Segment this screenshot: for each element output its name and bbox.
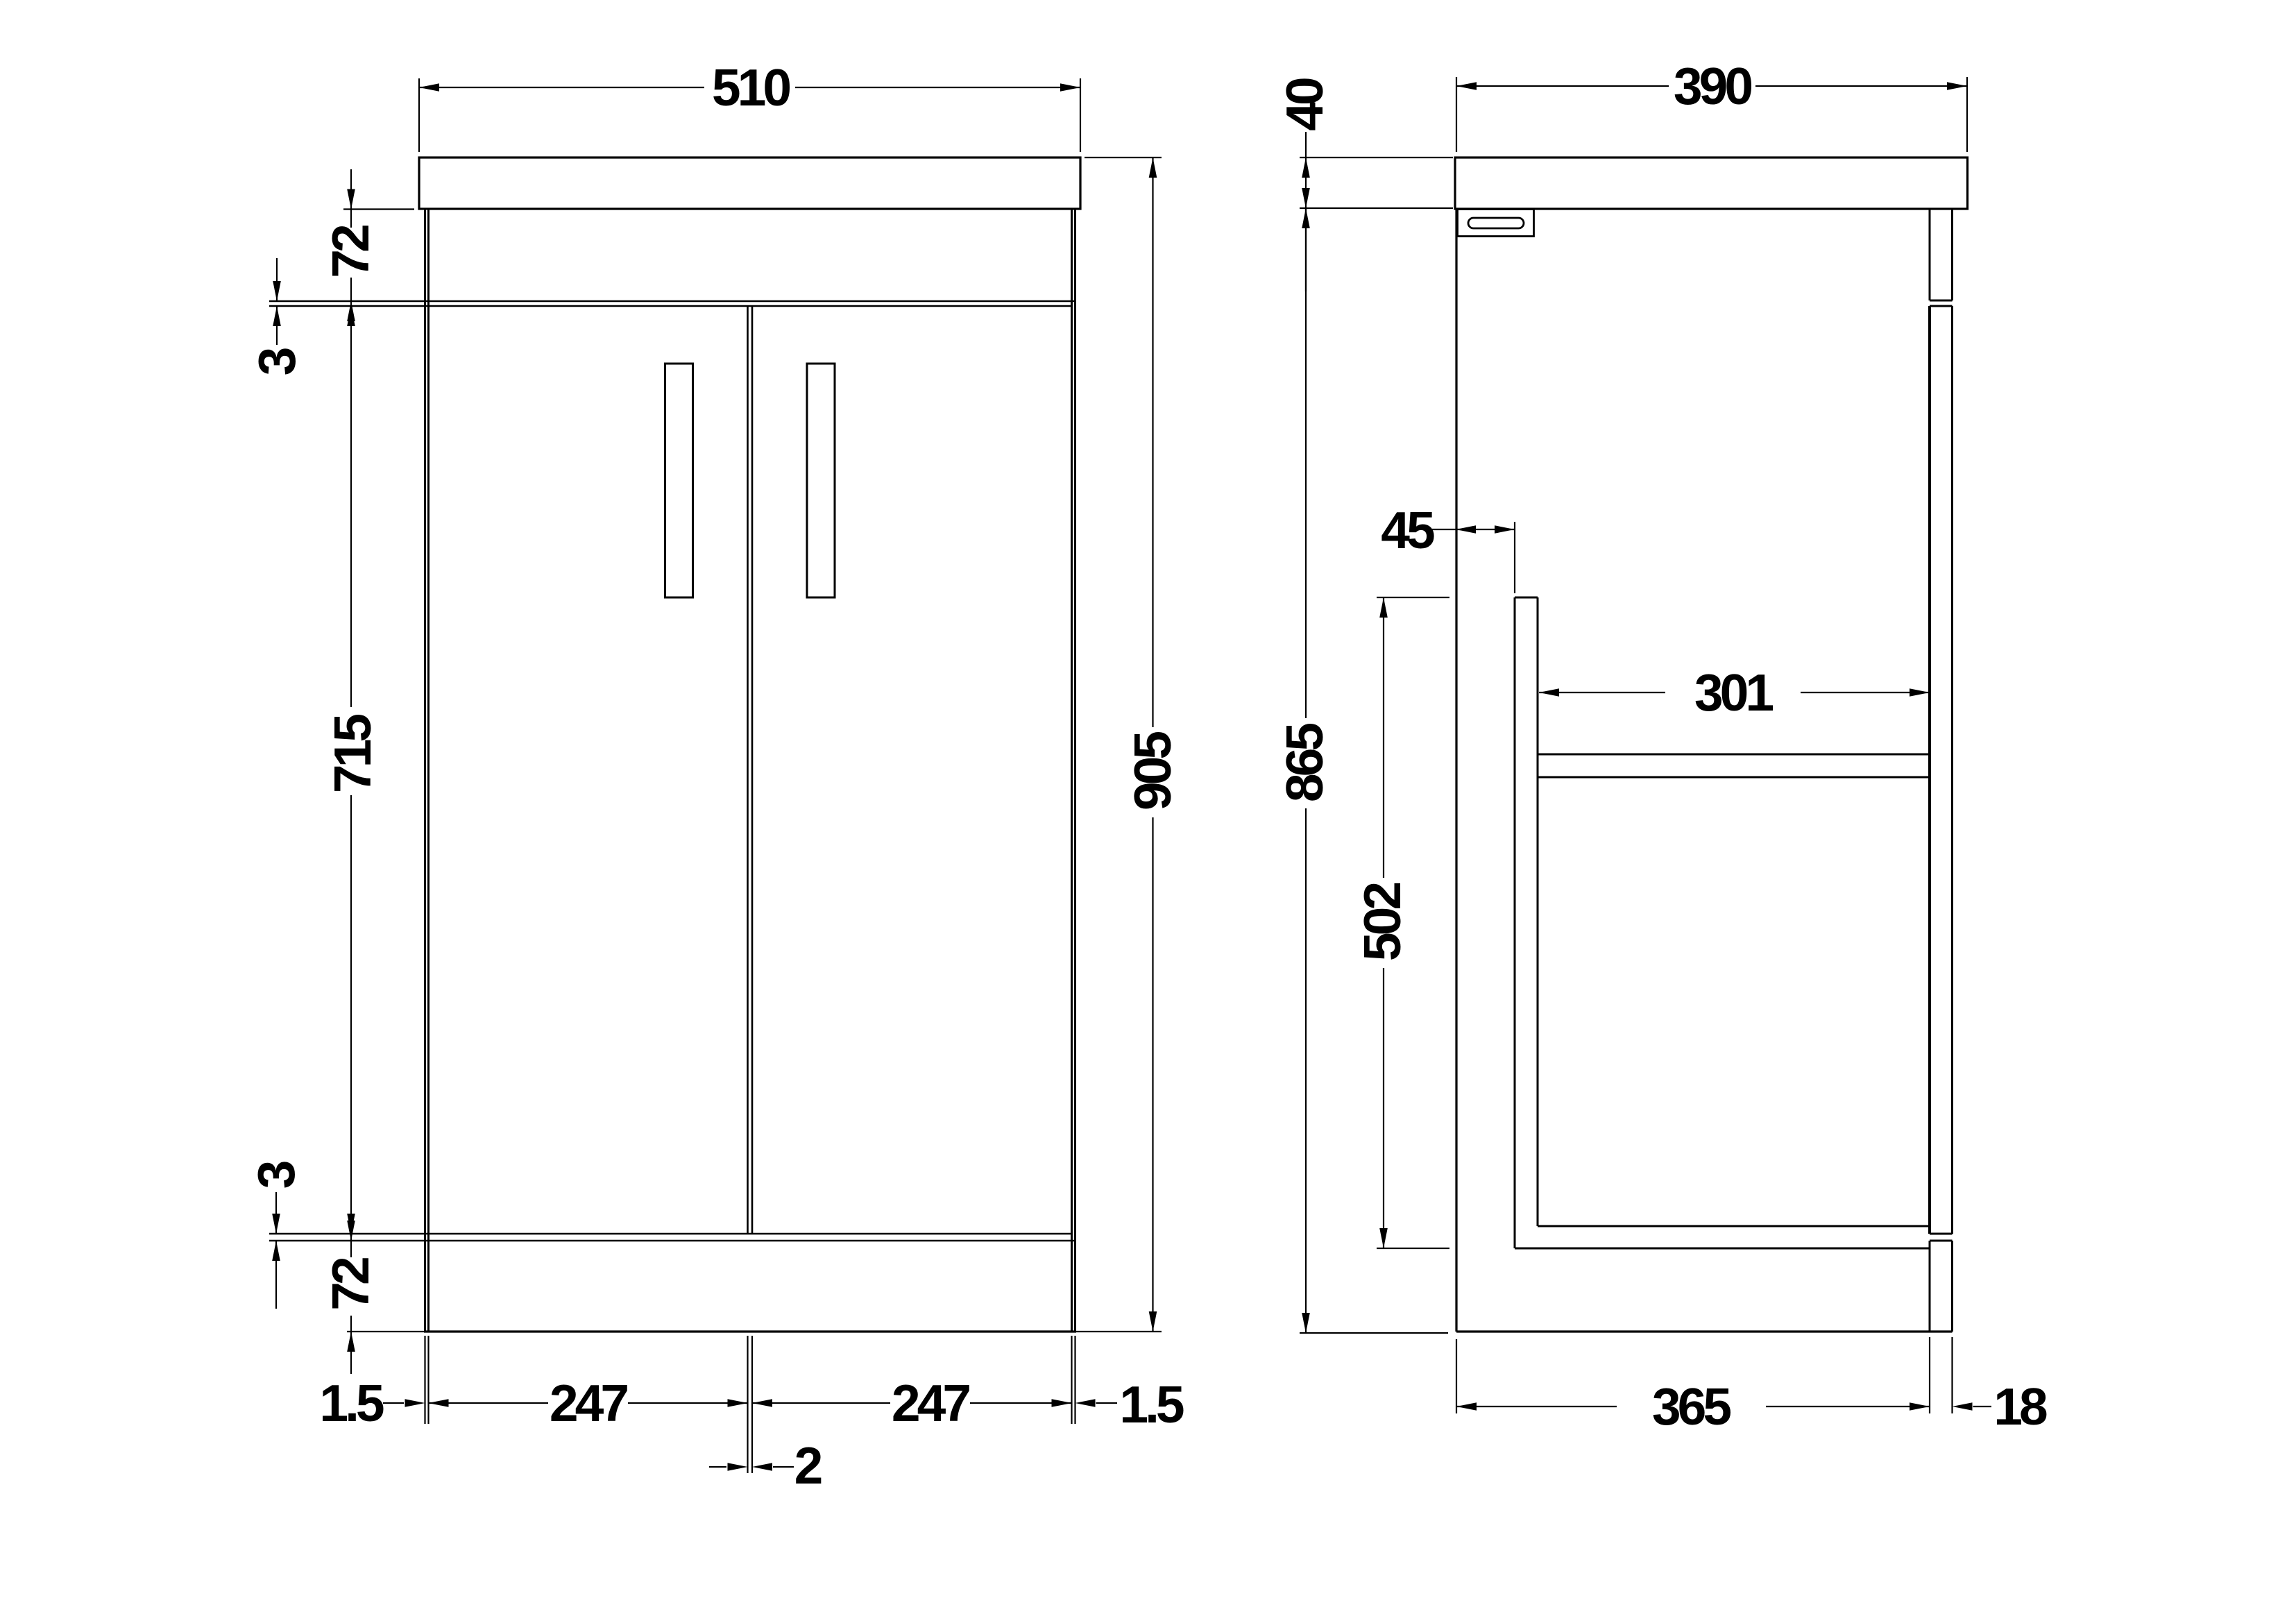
svg-text:72: 72: [321, 1258, 380, 1311]
svg-text:40: 40: [1275, 78, 1334, 131]
svg-text:45: 45: [1381, 501, 1434, 559]
svg-text:390: 390: [1674, 57, 1751, 115]
svg-text:72: 72: [321, 226, 380, 278]
svg-text:715: 715: [323, 715, 382, 793]
svg-text:3: 3: [247, 1162, 305, 1189]
svg-text:365: 365: [1652, 1377, 1730, 1436]
svg-text:510: 510: [712, 58, 790, 117]
svg-text:905: 905: [1123, 732, 1182, 810]
svg-text:3: 3: [248, 348, 306, 375]
svg-text:1.5: 1.5: [1119, 1375, 1184, 1434]
svg-text:1.5: 1.5: [319, 1374, 384, 1432]
svg-text:301: 301: [1694, 663, 1773, 722]
svg-text:18: 18: [1993, 1377, 2047, 1436]
svg-text:502: 502: [1353, 883, 1411, 961]
svg-text:247: 247: [892, 1374, 969, 1432]
svg-text:865: 865: [1275, 724, 1334, 802]
svg-text:247: 247: [550, 1374, 627, 1432]
svg-text:2: 2: [794, 1436, 822, 1495]
